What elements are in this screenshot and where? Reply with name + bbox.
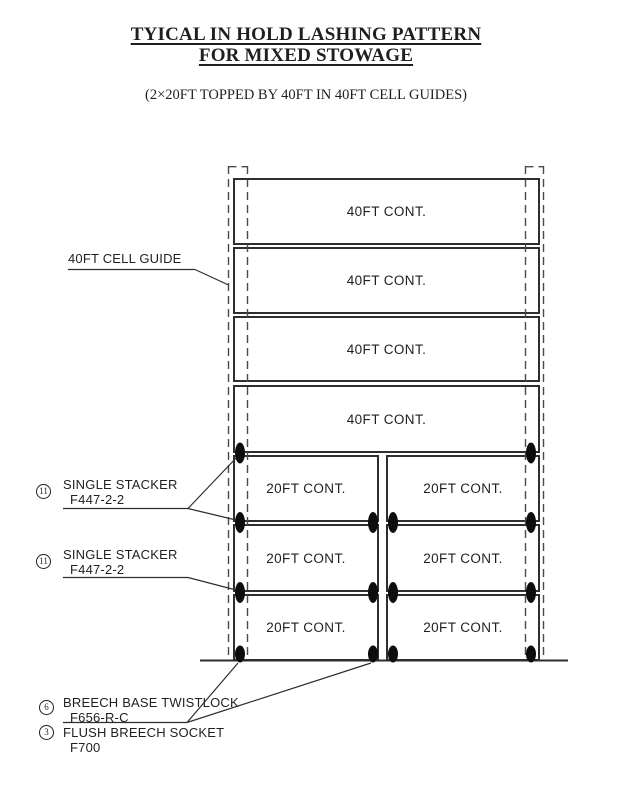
page-title-line2: FOR MIXED STOWAGE [0,45,612,66]
ref-circle-stacker-upper: 11 [36,484,51,499]
page-title-line1: TYICAL IN HOLD LASHING PATTERN [0,24,612,45]
flush-breech-socket-label: FLUSH BREECH SOCKET F700 [63,725,224,755]
container-20ft-right-2: 20FT CONT. [386,524,540,592]
single-stacker-lower-label: SINGLE STACKER F447-2-2 [63,547,178,577]
title-block: TYICAL IN HOLD LASHING PATTERN FOR MIXED… [0,24,612,103]
container-20ft-right-1-label: 20FT CONT. [423,481,503,496]
stacker-upper-leader-to-mid-fitting [188,509,236,521]
page-subtitle: (2×20FT TOPPED BY 40FT IN 40FT CELL GUID… [0,87,612,103]
container-20ft-left-3-label: 20FT CONT. [266,620,346,635]
ref-circle-stacker-upper-number: 11 [39,487,48,496]
ref-circle-stacker-lower-number: 11 [39,557,48,566]
container-40ft-4: 40FT CONT. [233,385,540,453]
container-20ft-left-1-label: 20FT CONT. [266,481,346,496]
breech-base-twistlock-name: BREECH BASE TWISTLOCK [63,695,239,710]
breech-base-twistlock-label: BREECH BASE TWISTLOCK F656-R-C [63,695,239,725]
ref-circle-twistlock-number: 6 [44,703,49,712]
container-40ft-4-label: 40FT CONT. [347,412,427,427]
container-40ft-1: 40FT CONT. [233,178,540,245]
single-stacker-upper-label: SINGLE STACKER F447-2-2 [63,477,178,507]
container-20ft-right-2-label: 20FT CONT. [423,551,503,566]
container-20ft-left-1: 20FT CONT. [233,455,379,522]
ref-circle-stacker-lower: 11 [36,554,51,569]
container-20ft-right-1: 20FT CONT. [386,455,540,522]
container-20ft-right-3: 20FT CONT. [386,594,540,661]
cell-guide-leader-diagonal [195,270,229,286]
container-40ft-3-label: 40FT CONT. [347,342,427,357]
ref-circle-socket-number: 3 [44,728,49,737]
cell-guide-label: 40FT CELL GUIDE [68,251,182,266]
container-20ft-left-2-label: 20FT CONT. [266,551,346,566]
container-40ft-2: 40FT CONT. [233,247,540,314]
container-20ft-left-3: 20FT CONT. [233,594,379,661]
container-40ft-2-label: 40FT CONT. [347,273,427,288]
single-stacker-upper-part: F447-2-2 [63,492,178,507]
container-20ft-left-2: 20FT CONT. [233,524,379,592]
single-stacker-lower-part: F447-2-2 [63,562,178,577]
container-20ft-right-3-label: 20FT CONT. [423,620,503,635]
single-stacker-upper-name: SINGLE STACKER [63,477,178,492]
flush-breech-socket-name: FLUSH BREECH SOCKET [63,725,224,740]
flush-breech-socket-part: F700 [63,740,224,755]
cell-guide-label-text: 40FT CELL GUIDE [68,251,182,266]
stacker-lower-leader-diagonal [188,578,236,591]
ref-circle-socket: 3 [39,725,54,740]
container-40ft-3: 40FT CONT. [233,316,540,382]
container-40ft-1-label: 40FT CONT. [347,204,427,219]
stacker-upper-leader-to-top-fitting [188,456,238,509]
ref-circle-twistlock: 6 [39,700,54,715]
single-stacker-lower-name: SINGLE STACKER [63,547,178,562]
breech-base-twistlock-part: F656-R-C [63,710,239,725]
drawing-page: TYICAL IN HOLD LASHING PATTERN FOR MIXED… [0,0,628,790]
